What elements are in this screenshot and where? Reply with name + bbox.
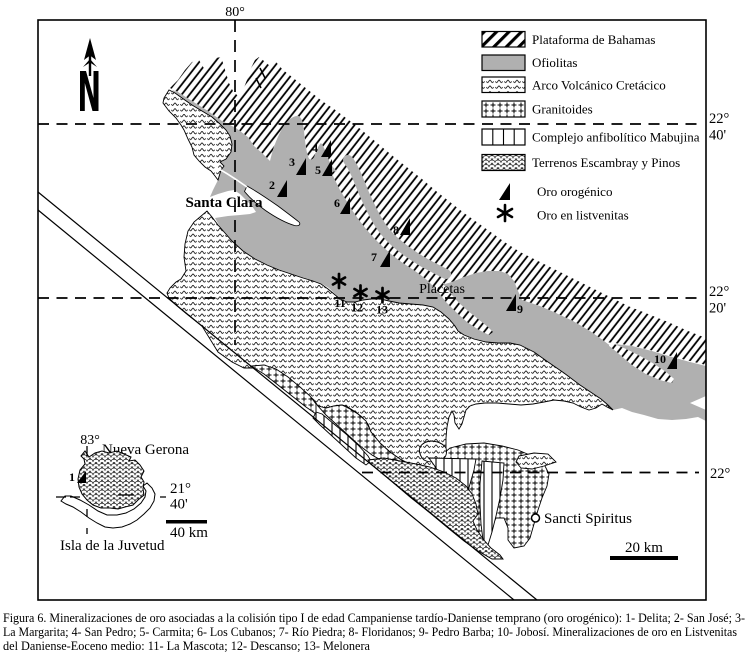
svg-text:Ofiolitas: Ofiolitas <box>532 55 578 70</box>
svg-text:Oro orogénico: Oro orogénico <box>537 184 612 199</box>
svg-text:2: 2 <box>269 178 275 192</box>
svg-text:6: 6 <box>334 196 340 210</box>
svg-text:4: 4 <box>312 141 318 155</box>
svg-text:83°: 83° <box>80 433 100 448</box>
svg-text:del Daniense-Eoceno medio: 11-: del Daniense-Eoceno medio: 11- La Mascot… <box>3 639 370 653</box>
svg-text:80°: 80° <box>225 5 245 20</box>
svg-text:8: 8 <box>393 223 399 237</box>
svg-text:12: 12 <box>351 301 363 315</box>
svg-text:22°: 22° <box>710 466 731 482</box>
svg-text:40': 40' <box>170 497 188 513</box>
svg-text:Sancti Spiritus: Sancti Spiritus <box>544 511 632 527</box>
svg-text:Oro en listvenitas: Oro en listvenitas <box>537 208 629 223</box>
svg-text:Isla de la Juvetud: Isla de la Juvetud <box>60 538 165 554</box>
svg-text:1: 1 <box>69 470 75 484</box>
svg-text:13: 13 <box>376 303 388 317</box>
svg-text:7: 7 <box>371 250 377 264</box>
svg-text:20 km: 20 km <box>625 540 663 556</box>
svg-text:11: 11 <box>334 296 345 310</box>
svg-text:Terrenos Escambray y Pinos: Terrenos Escambray y Pinos <box>532 155 680 170</box>
svg-text:Figura 6. Mineralizaciones de: Figura 6. Mineralizaciones de oro asocia… <box>3 611 745 625</box>
svg-text:21°: 21° <box>170 481 191 497</box>
svg-text:10: 10 <box>654 352 666 366</box>
svg-text:22°: 22° <box>709 111 730 127</box>
svg-text:Arco Volcánico Cretácico: Arco Volcánico Cretácico <box>532 78 666 93</box>
svg-text:Plataforma de Bahamas: Plataforma de Bahamas <box>532 32 655 47</box>
svg-text:22°: 22° <box>709 284 730 300</box>
svg-text:Granitoides: Granitoides <box>532 102 593 117</box>
svg-text:Placetas: Placetas <box>419 282 465 297</box>
svg-text:Santa Clara: Santa Clara <box>185 195 263 211</box>
svg-text:Complejo anfibolítico Mabujina: Complejo anfibolítico Mabujina <box>532 130 700 145</box>
svg-text:20': 20' <box>709 301 726 317</box>
svg-text:3: 3 <box>289 155 295 169</box>
svg-text:5: 5 <box>315 163 321 177</box>
svg-text:40': 40' <box>709 128 726 144</box>
svg-text:40 km: 40 km <box>170 525 208 541</box>
svg-text:9: 9 <box>517 302 523 316</box>
svg-text:La Margarita; 4- San Pedro; 5-: La Margarita; 4- San Pedro; 5- Carmita; … <box>3 625 737 639</box>
